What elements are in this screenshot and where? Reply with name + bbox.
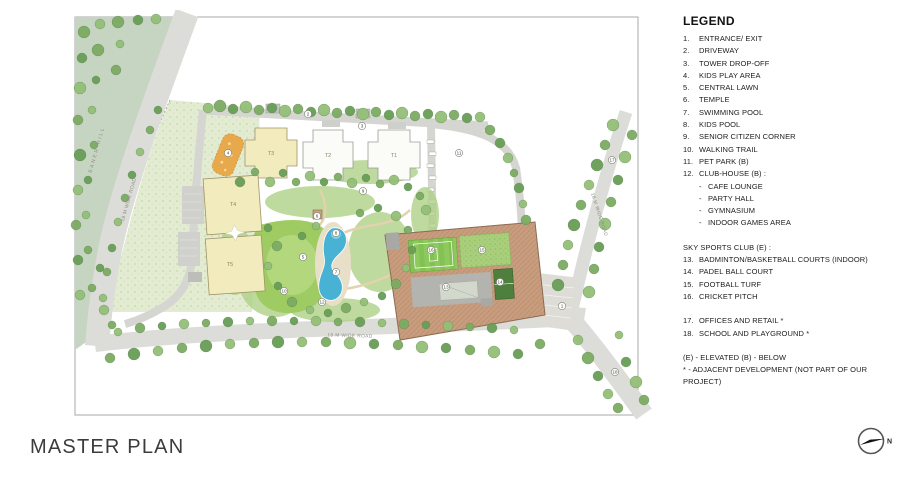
- plan-marker-5: 5: [299, 253, 306, 260]
- plan-marker-7: 7: [332, 268, 339, 275]
- drop-off-t1: [388, 122, 406, 129]
- master-plan-svg: BANER HILL18 M WIDE ROAD18 M WIDE ROAD18…: [70, 10, 670, 420]
- svg-text:3: 3: [361, 124, 364, 129]
- plan-marker-13: 13: [442, 283, 449, 290]
- plan-marker-6: 6: [313, 212, 320, 219]
- legend-item: 6.TEMPLE: [683, 94, 895, 106]
- legend-item: 12.CLUB-HOUSE (B) :: [683, 168, 895, 180]
- svg-text:11: 11: [457, 151, 462, 156]
- north-label: N: [887, 439, 892, 446]
- plan-marker-3: 3: [358, 122, 365, 129]
- legend-item: 15.FOOTBALL TURF: [683, 279, 895, 291]
- svg-text:15: 15: [479, 248, 485, 253]
- legend-spacer: [683, 303, 895, 315]
- legend-item: 17.OFFICES AND RETAIL *: [683, 315, 895, 327]
- legend-item: 8.KIDS POOL: [683, 119, 895, 131]
- plan-marker-1: 1: [558, 302, 565, 309]
- legend-item: 4.KIDS PLAY AREA: [683, 70, 895, 82]
- svg-text:6: 6: [316, 214, 319, 219]
- plan-marker-14: 14: [496, 278, 503, 285]
- svg-text:8: 8: [335, 231, 338, 236]
- north-arrow: N: [851, 421, 897, 461]
- plan-marker-18: 18: [611, 368, 618, 375]
- plan-marker-11: 11: [455, 149, 462, 156]
- legend-item: 5.CENTRAL LAWN: [683, 82, 895, 94]
- legend-panel: LEGEND 1.ENTRANCE/ EXIT2.DRIVEWAY3.TOWER…: [683, 14, 895, 389]
- page-title: MASTER PLAN: [30, 436, 184, 459]
- svg-text:1: 1: [561, 304, 564, 309]
- svg-text:14: 14: [497, 280, 503, 285]
- svg-text:10: 10: [281, 289, 287, 294]
- tower-t5: [205, 235, 265, 295]
- legend-foot: * - ADJACENT DEVELOPMENT (NOT PART OF OU…: [683, 364, 895, 389]
- plan-marker-16: 16: [427, 246, 434, 253]
- legend-item: 9.SENIOR CITIZEN CORNER: [683, 131, 895, 143]
- legend-item: 16.CRICKET PITCH: [683, 291, 895, 303]
- master-plan-map: BANER HILL18 M WIDE ROAD18 M WIDE ROAD18…: [70, 10, 670, 420]
- drop-off-t2: [322, 120, 340, 127]
- svg-text:9: 9: [362, 189, 365, 194]
- plan-marker-2: 2: [304, 110, 311, 117]
- legend-item: 2.DRIVEWAY: [683, 45, 895, 57]
- legend-item: 14.PADEL BALL COURT: [683, 266, 895, 278]
- legend-sub: -INDOOR GAMES AREA: [683, 217, 895, 229]
- legend-sub: -GYMNASIUM: [683, 205, 895, 217]
- plan-marker-8: 8: [332, 229, 339, 236]
- legend-spacer: [683, 340, 895, 352]
- svg-text:18: 18: [612, 370, 618, 375]
- svg-text:12: 12: [319, 300, 325, 305]
- legend-spacer: [683, 230, 895, 242]
- legend-list: 1.ENTRANCE/ EXIT2.DRIVEWAY3.TOWER DROP-O…: [683, 33, 895, 389]
- legend-title: LEGEND: [683, 14, 895, 28]
- plan-marker-10: 10: [280, 287, 287, 294]
- tower-label-T2: T2: [325, 153, 331, 159]
- legend-sub: -CAFE LOUNGE: [683, 181, 895, 193]
- north-needle: [860, 439, 885, 445]
- legend-item: 1.ENTRANCE/ EXIT: [683, 33, 895, 45]
- plan-marker-17: 17: [608, 156, 615, 163]
- tower-label-T1: T1: [391, 153, 397, 159]
- legend-item: 18.SCHOOL AND PLAYGROUND *: [683, 328, 895, 340]
- svg-text:5: 5: [302, 255, 305, 260]
- svg-text:7: 7: [335, 270, 338, 275]
- svg-text:13: 13: [443, 285, 449, 290]
- plan-marker-12: 12: [318, 298, 325, 305]
- plan-marker-4: 4: [224, 149, 231, 156]
- legend-item: 11.PET PARK (B): [683, 156, 895, 168]
- legend-item: 7.SWIMMING POOL: [683, 107, 895, 119]
- svg-text:17: 17: [609, 158, 615, 163]
- svg-text:2: 2: [307, 112, 310, 117]
- plan-marker-15: 15: [478, 246, 485, 253]
- svg-text:4: 4: [227, 151, 230, 156]
- legend-foot: (E) - ELEVATED (B) - BELOW: [683, 352, 895, 364]
- legend-item: 3.TOWER DROP-OFF: [683, 58, 895, 70]
- tower-label-T5: T5: [227, 262, 233, 268]
- legend-item: 13.BADMINTON/BASKETBALL COURTS (INDOOR): [683, 254, 895, 266]
- legend-head: SKY SPORTS CLUB (E) :: [683, 242, 895, 254]
- tower-label-T4: T4: [230, 202, 236, 208]
- legend-sub: -PARTY HALL: [683, 193, 895, 205]
- tower-label-T3: T3: [268, 151, 274, 157]
- plan-marker-9: 9: [359, 187, 366, 194]
- legend-item: 10.WALKING TRAIL: [683, 144, 895, 156]
- svg-text:16: 16: [428, 248, 434, 253]
